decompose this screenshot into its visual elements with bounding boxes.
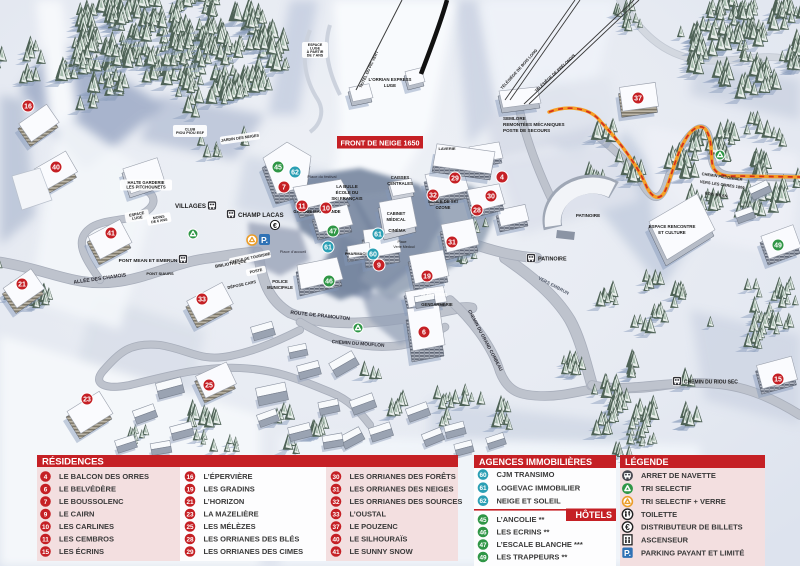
svg-text:OZONE: OZONE: [436, 205, 451, 210]
svg-text:P.: P.: [261, 235, 268, 245]
svg-text:ESPACE RENCONTRE: ESPACE RENCONTRE: [649, 224, 696, 229]
svg-text:TRI SELECTIF + VERRE: TRI SELECTIF + VERRE: [641, 497, 726, 506]
svg-text:TRI SELECTIF: TRI SELECTIF: [641, 484, 692, 493]
svg-text:31: 31: [332, 486, 340, 493]
svg-text:LE BOUSSOLENC: LE BOUSSOLENC: [59, 497, 124, 506]
svg-text:TOILETTE: TOILETTE: [641, 510, 677, 519]
svg-text:11: 11: [42, 536, 49, 543]
svg-text:37: 37: [634, 96, 642, 103]
svg-text:30: 30: [332, 474, 340, 481]
svg-text:21: 21: [18, 282, 26, 289]
svg-text:62: 62: [479, 498, 487, 505]
svg-text:9: 9: [377, 263, 381, 270]
svg-text:PATINOIRE: PATINOIRE: [576, 213, 600, 218]
svg-text:L’ANCOLIE **: L’ANCOLIE **: [497, 515, 545, 524]
svg-text:HÔTELS: HÔTELS: [575, 509, 612, 520]
svg-text:47: 47: [479, 542, 487, 549]
svg-text:CHAMP LACAS: CHAMP LACAS: [238, 212, 284, 219]
svg-text:LES TRAPPEURS **: LES TRAPPEURS **: [497, 553, 568, 562]
svg-text:40: 40: [332, 536, 340, 543]
svg-text:LÉGENDE: LÉGENDE: [625, 457, 669, 467]
svg-text:CENTRALES: CENTRALES: [387, 181, 413, 186]
svg-text:47: 47: [329, 229, 337, 236]
svg-text:MUNICIPALE: MUNICIPALE: [267, 285, 293, 290]
svg-text:LA MAZELIÈRE: LA MAZELIÈRE: [204, 510, 259, 519]
svg-text:10: 10: [322, 206, 330, 213]
svg-text:29: 29: [186, 549, 194, 556]
svg-text:45: 45: [274, 165, 282, 172]
svg-text:45: 45: [479, 517, 487, 524]
svg-text:41: 41: [107, 231, 115, 238]
svg-text:PHARMACIE: PHARMACIE: [345, 251, 370, 256]
svg-text:32: 32: [332, 499, 340, 506]
svg-text:POSTE DE SECOURS: POSTE DE SECOURS: [503, 128, 550, 133]
svg-text:LA BULLE: LA BULLE: [336, 184, 358, 189]
svg-text:ÉCOLE DU: ÉCOLE DU: [336, 190, 359, 195]
svg-text:LES ORRIANES DES NEIGES: LES ORRIANES DES NEIGES: [350, 485, 454, 494]
svg-text:LES ORRIANES DES SOURCES: LES ORRIANES DES SOURCES: [350, 497, 463, 506]
svg-text:7: 7: [44, 499, 48, 506]
svg-text:4: 4: [44, 474, 48, 481]
svg-text:GENDARMERIE: GENDARMERIE: [421, 302, 453, 307]
svg-text:FRONT DE NEIGE 1650: FRONT DE NEIGE 1650: [340, 138, 419, 147]
svg-text:28: 28: [186, 536, 194, 543]
svg-text:LE BALCON DES ORRES: LE BALCON DES ORRES: [59, 472, 149, 481]
svg-text:LE CAIRN: LE CAIRN: [59, 510, 94, 519]
svg-text:CAISSES: CAISSES: [391, 175, 410, 180]
svg-text:31: 31: [448, 240, 456, 247]
svg-text:€: €: [273, 223, 277, 230]
svg-text:Place: Place: [398, 240, 407, 244]
svg-text:16: 16: [186, 474, 194, 481]
svg-text:28: 28: [473, 208, 481, 215]
svg-text:CINÉMA: CINÉMA: [388, 228, 406, 233]
svg-text:32: 32: [429, 193, 437, 200]
svg-text:7: 7: [282, 185, 286, 192]
svg-text:23: 23: [83, 397, 91, 404]
svg-text:LUGE: LUGE: [384, 83, 396, 88]
svg-text:LES CEMBROS: LES CEMBROS: [59, 535, 114, 544]
svg-text:LE SUNNY SNOW: LE SUNNY SNOW: [350, 547, 414, 556]
svg-text:L’ÉPERVIÈRE: L’ÉPERVIÈRE: [204, 472, 253, 481]
svg-text:CABINET: CABINET: [387, 211, 406, 216]
svg-text:LES ÉCRINS: LES ÉCRINS: [59, 547, 104, 556]
svg-text:VILLAGES: VILLAGES: [175, 203, 206, 210]
svg-text:CJM TRANSIMO: CJM TRANSIMO: [497, 470, 555, 479]
svg-text:40: 40: [52, 165, 60, 172]
svg-text:15: 15: [774, 377, 782, 384]
svg-text:ET CULTURE: ET CULTURE: [658, 230, 686, 235]
svg-text:37: 37: [332, 524, 340, 531]
svg-text:49: 49: [774, 243, 782, 250]
svg-text:21: 21: [186, 499, 194, 506]
svg-text:LES GRADINS: LES GRADINS: [204, 485, 255, 494]
svg-text:L’OUSTAL: L’OUSTAL: [350, 510, 387, 519]
svg-text:29: 29: [451, 176, 459, 183]
svg-text:LES ECRINS **: LES ECRINS **: [497, 528, 550, 537]
svg-text:19: 19: [186, 486, 194, 493]
svg-text:SÉMINAIRES: SÉMINAIRES: [421, 292, 447, 297]
svg-text:L’HORIZON: L’HORIZON: [204, 497, 245, 506]
svg-text:REMONTÉES MÉCANIQUES: REMONTÉES MÉCANIQUES: [503, 120, 565, 127]
svg-text:RÉSIDENCES: RÉSIDENCES: [42, 457, 104, 468]
svg-text:6: 6: [422, 330, 426, 337]
svg-text:60: 60: [479, 472, 487, 479]
svg-text:62: 62: [291, 170, 299, 177]
svg-text:AGENCES IMMOBILIÈRES: AGENCES IMMOBILIÈRES: [479, 457, 592, 467]
svg-text:10: 10: [42, 524, 50, 531]
svg-text:46: 46: [479, 529, 487, 536]
svg-text:PIOU PIOU ESF: PIOU PIOU ESF: [176, 131, 205, 135]
svg-text:LE POUZENC: LE POUZENC: [350, 522, 399, 531]
svg-text:LES PITCHOUNETS: LES PITCHOUNETS: [126, 184, 166, 189]
svg-text:ASCENSEUR: ASCENSEUR: [641, 535, 689, 544]
svg-text:19: 19: [423, 274, 431, 281]
svg-text:25: 25: [205, 383, 213, 390]
svg-text:33: 33: [198, 297, 206, 304]
svg-text:€: €: [625, 522, 630, 532]
svg-text:POLICE: POLICE: [272, 279, 288, 284]
svg-text:L’ESCALE BLANCHE ***: L’ESCALE BLANCHE ***: [497, 540, 583, 549]
svg-text:LAVERIE: LAVERIE: [438, 146, 455, 151]
svg-text:LE BELVÉDÈRE: LE BELVÉDÈRE: [59, 485, 116, 494]
svg-text:49: 49: [479, 554, 487, 561]
svg-text:30: 30: [487, 194, 495, 201]
svg-text:33: 33: [332, 511, 340, 518]
svg-text:61: 61: [374, 232, 382, 239]
svg-text:LES MÉLÈZES: LES MÉLÈZES: [204, 522, 256, 531]
svg-text:LES CARLINES: LES CARLINES: [59, 522, 114, 531]
svg-text:Verte Medoul: Verte Medoul: [393, 245, 414, 249]
svg-text:LE SILHOURAÏS: LE SILHOURAÏS: [350, 535, 408, 544]
svg-text:41: 41: [332, 549, 340, 556]
svg-text:16: 16: [24, 104, 32, 111]
svg-text:11: 11: [298, 204, 306, 211]
svg-text:60: 60: [369, 252, 377, 259]
svg-text:9: 9: [44, 511, 48, 518]
svg-text:LES ORRIANES DES FORÊTS: LES ORRIANES DES FORÊTS: [350, 472, 456, 481]
svg-text:DE 7 ANS: DE 7 ANS: [307, 54, 324, 58]
svg-text:LES ORRIANES DES BLÉS: LES ORRIANES DES BLÉS: [204, 535, 300, 544]
svg-text:PATINOIRE: PATINOIRE: [538, 257, 567, 263]
svg-text:15: 15: [42, 549, 50, 556]
svg-text:ARRET DE NAVETTE: ARRET DE NAVETTE: [641, 471, 716, 480]
svg-text:PARKING PAYANT ET LIMITÉ: PARKING PAYANT ET LIMITÉ: [641, 548, 744, 557]
svg-text:MÉDICAL: MÉDICAL: [386, 217, 406, 222]
svg-text:61: 61: [324, 245, 332, 252]
svg-text:Place du festival: Place du festival: [307, 174, 336, 179]
svg-text:PONT MEAN ET EMBRUN: PONT MEAN ET EMBRUN: [119, 258, 178, 264]
svg-text:4: 4: [500, 175, 504, 182]
svg-text:DISTRIBUTEUR DE BILLETS: DISTRIBUTEUR DE BILLETS: [641, 523, 743, 532]
svg-text:23: 23: [186, 511, 194, 518]
svg-text:61: 61: [479, 485, 487, 492]
svg-text:NEIGE ET SOLEIL: NEIGE ET SOLEIL: [497, 496, 562, 505]
svg-text:LES ORRIANES DES CIMES: LES ORRIANES DES CIMES: [204, 547, 304, 556]
svg-text:SEMLORE: SEMLORE: [503, 116, 526, 121]
svg-text:P.: P.: [624, 548, 631, 558]
svg-text:25: 25: [186, 524, 194, 531]
svg-text:46: 46: [325, 279, 333, 286]
svg-text:6: 6: [44, 486, 48, 493]
svg-text:CHEMIN DU RIOU SEC: CHEMIN DU RIOU SEC: [684, 380, 738, 386]
svg-text:SKI FRANÇAIS: SKI FRANÇAIS: [331, 196, 362, 201]
svg-text:LOGEVAC IMMOBILIER: LOGEVAC IMMOBILIER: [497, 483, 581, 492]
svg-text:L'ORRIAN EXPRESS: L'ORRIAN EXPRESS: [368, 77, 411, 82]
svg-text:PONT SIAURS: PONT SIAURS: [146, 271, 174, 276]
svg-text:Place d'accueil: Place d'accueil: [280, 249, 307, 254]
